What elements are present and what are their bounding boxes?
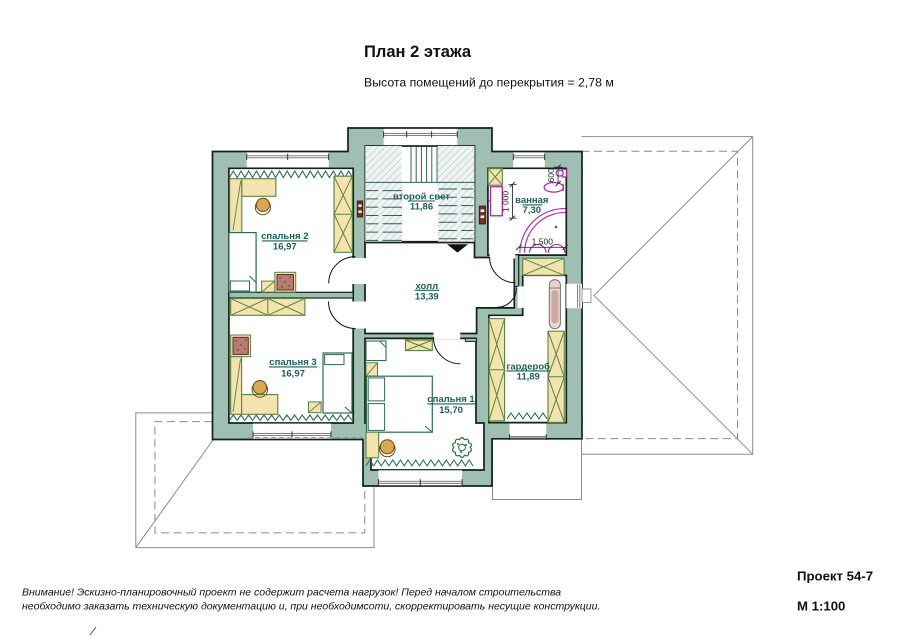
svg-text:11,86: 11,86 (410, 202, 433, 213)
svg-text:Проект 54-7: Проект 54-7 (797, 569, 873, 584)
svg-text:1 000: 1 000 (500, 191, 510, 213)
svg-text:16,97: 16,97 (273, 242, 297, 253)
svg-text:Высота помещений до перекрытия: Высота помещений до перекрытия = 2,78 м (364, 76, 614, 90)
svg-text:13,39: 13,39 (415, 291, 439, 302)
svg-text:7,30: 7,30 (523, 205, 542, 216)
svg-text:11,89: 11,89 (517, 372, 540, 383)
svg-text:15,70: 15,70 (439, 405, 463, 416)
svg-text:1 500: 1 500 (532, 237, 554, 247)
svg-text:План 2 этажа: План 2 этажа (364, 43, 472, 61)
svg-text:Внимание! Эскизно-планировочны: Внимание! Эскизно-планировочный проект н… (22, 587, 561, 599)
svg-text:необходимо заказать техническу: необходимо заказать техническую документ… (22, 601, 600, 613)
svg-text:16,97: 16,97 (281, 368, 305, 379)
svg-text:М 1:100: М 1:100 (797, 599, 845, 614)
svg-text:600: 600 (546, 168, 556, 182)
